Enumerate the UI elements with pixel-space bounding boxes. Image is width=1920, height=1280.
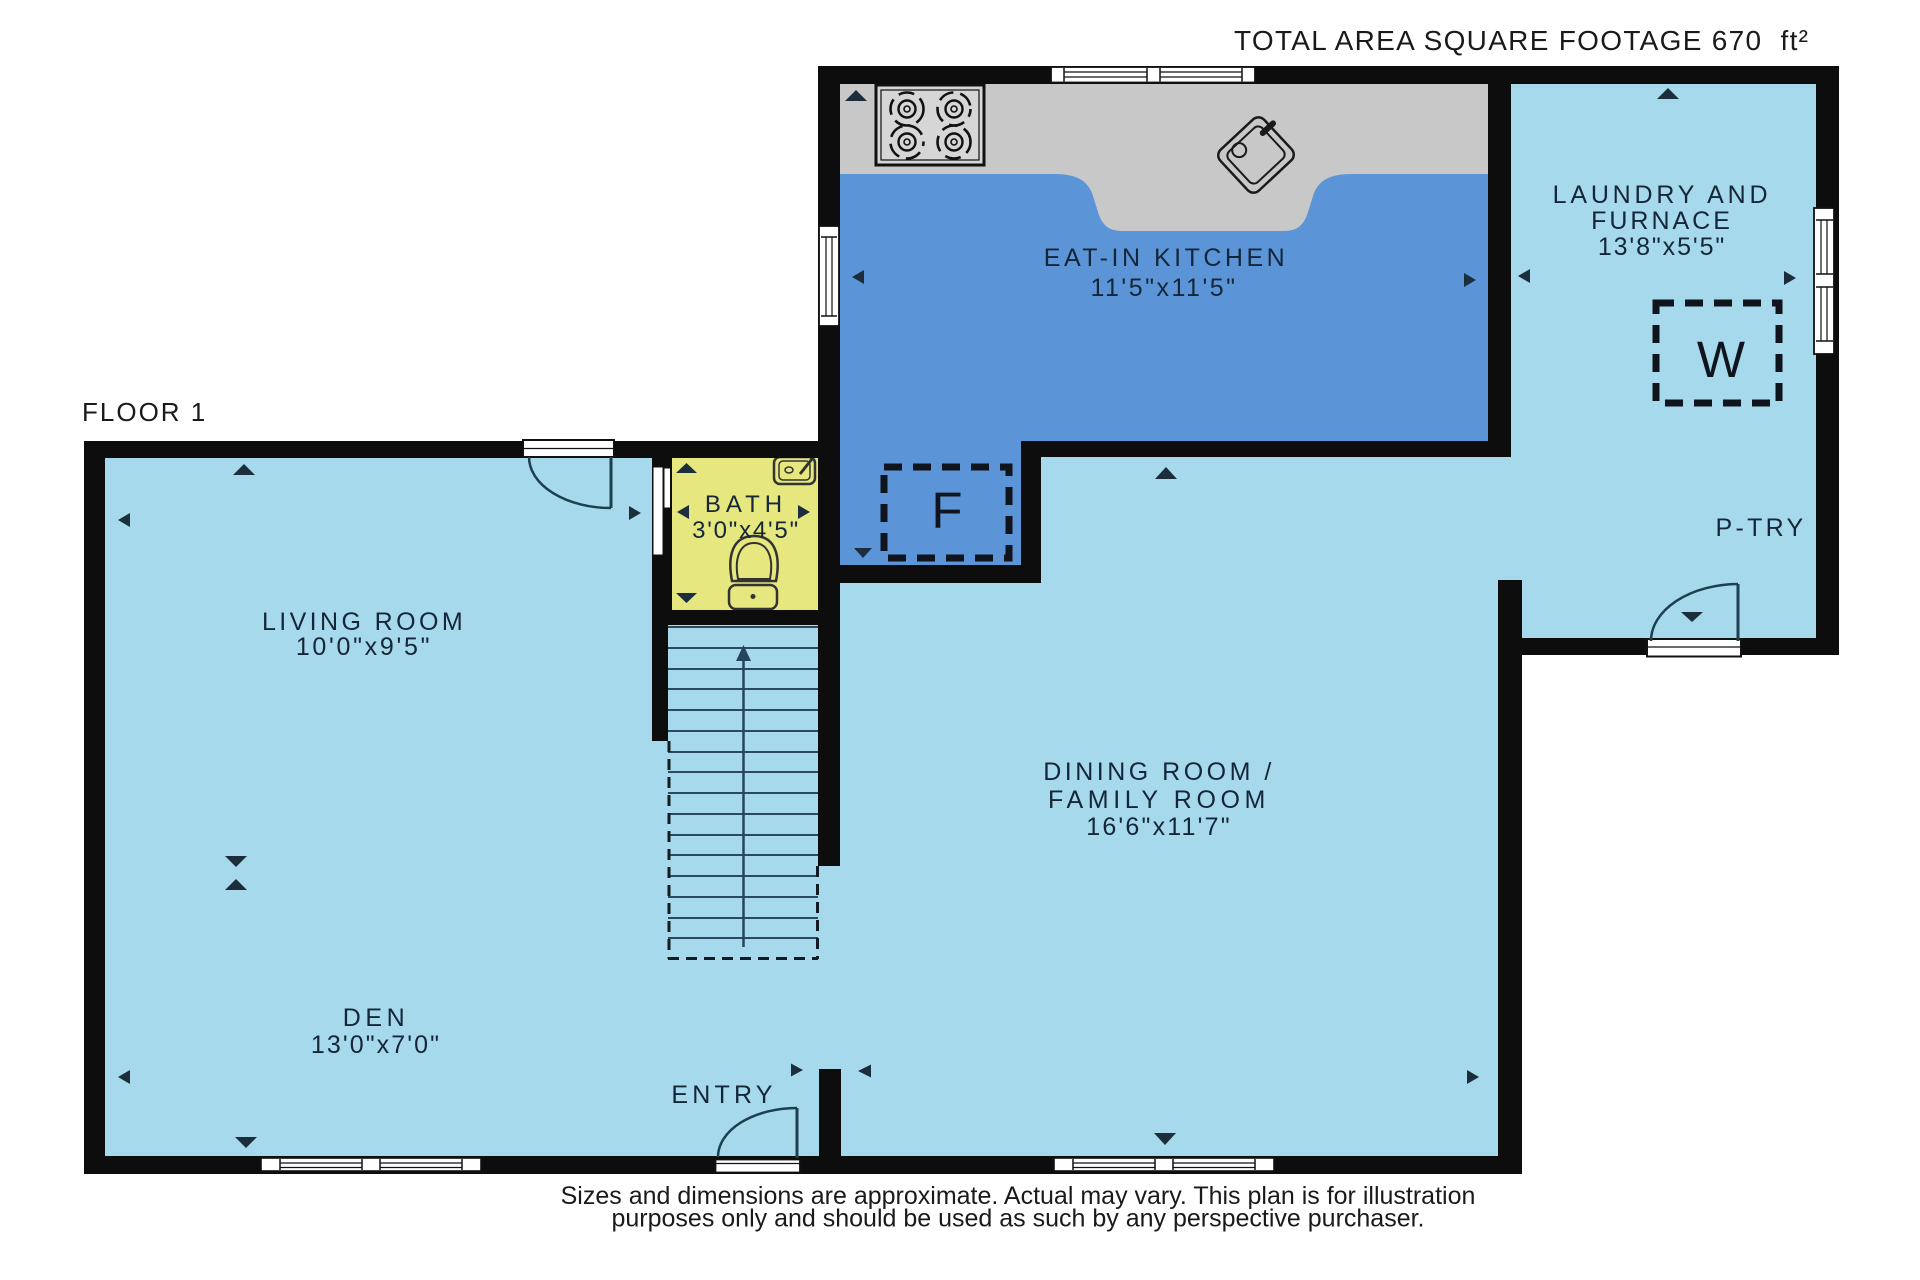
svg-text:11'5"x11'5": 11'5"x11'5" xyxy=(1090,274,1237,302)
svg-text:13'8"x5'5": 13'8"x5'5" xyxy=(1598,233,1726,261)
svg-text:P-TRY: P-TRY xyxy=(1715,514,1806,542)
svg-text:BATH: BATH xyxy=(705,491,787,518)
svg-text:16'6"x11'7": 16'6"x11'7" xyxy=(1086,813,1232,841)
svg-text:TOTAL AREA SQUARE FOOTAGE 670: TOTAL AREA SQUARE FOOTAGE 670 ft² xyxy=(1234,25,1809,56)
svg-text:LIVING ROOM: LIVING ROOM xyxy=(262,608,466,636)
svg-text:DEN: DEN xyxy=(343,1004,410,1032)
svg-text:W: W xyxy=(1697,331,1745,388)
svg-text:13'0"x7'0": 13'0"x7'0" xyxy=(311,1031,441,1059)
svg-text:3'0"x4'5": 3'0"x4'5" xyxy=(692,517,800,544)
svg-text:purposes only and should be us: purposes only and should be used as such… xyxy=(611,1205,1424,1233)
svg-text:FURNACE: FURNACE xyxy=(1591,207,1733,235)
svg-text:FLOOR 1: FLOOR 1 xyxy=(82,397,207,427)
svg-text:LAUNDRY AND: LAUNDRY AND xyxy=(1553,181,1772,209)
svg-text:EAT-IN KITCHEN: EAT-IN KITCHEN xyxy=(1044,244,1288,272)
svg-text:F: F xyxy=(931,482,962,539)
svg-text:ENTRY: ENTRY xyxy=(671,1081,776,1109)
svg-text:DINING ROOM /: DINING ROOM / xyxy=(1043,758,1275,786)
svg-text:FAMILY ROOM: FAMILY ROOM xyxy=(1048,786,1270,814)
svg-text:10'0"x9'5": 10'0"x9'5" xyxy=(296,633,432,661)
